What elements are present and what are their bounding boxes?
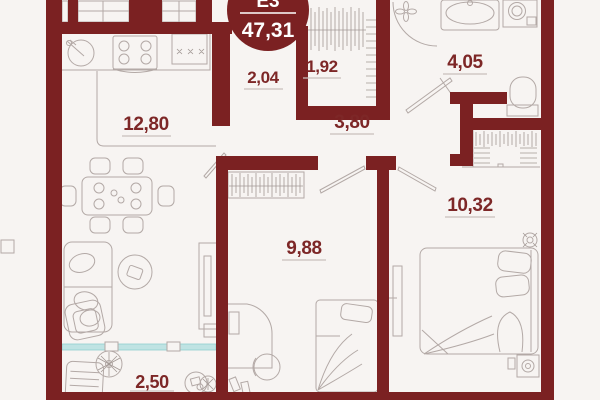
area-bedroom-middle: 9,88 [286, 238, 321, 259]
hall-wardrobe-icon [228, 172, 304, 198]
small-plant-icon [200, 376, 216, 392]
area-bathroom: 4,05 [447, 52, 483, 73]
sofa-icon [64, 242, 112, 332]
toilet-icon [507, 77, 538, 116]
bedroom-right-door-leaf [398, 167, 436, 191]
area-hallway: 3,80 [334, 112, 369, 133]
bed-right-icon [420, 248, 538, 354]
room-area-labels: 12,80 2,04 1,92 3,80 4,05 10,32 9,88 2,5… [122, 52, 495, 392]
area-balcony: 2,50 [135, 372, 169, 392]
kitchen-counter [62, 34, 210, 70]
bathtub-icon [441, 0, 499, 30]
area-kitchen-living: 12,80 [123, 114, 169, 135]
bedroom-wardrobe-icon [462, 130, 540, 167]
plant-icon [96, 351, 122, 377]
coffee-table-icon [118, 255, 152, 289]
ceiling-flower-icon [396, 2, 417, 22]
bathroom-door-leaf [406, 78, 452, 113]
floor-plan-drawing: Е3 47,31 12,80 2,04 1,92 3,80 4,05 10,32… [0, 0, 600, 400]
dining-set-icon [60, 158, 174, 233]
area-corridor: 2,04 [247, 68, 279, 87]
wall-lamp-icon [523, 233, 537, 247]
closet-wardrobe-icon [308, 7, 376, 97]
balcony-table-icon [185, 372, 207, 394]
side-table-icon [204, 324, 217, 337]
tv-stand-icon [199, 243, 218, 329]
balcony-glazing [62, 342, 216, 351]
desk-icon [228, 304, 272, 368]
bed-middle-icon [316, 300, 378, 392]
mirror-icon [393, 266, 402, 336]
apartment-type-label: Е3 [256, 0, 279, 12]
floor-plan: Е3 47,31 12,80 2,04 1,92 3,80 4,05 10,32… [0, 0, 600, 400]
total-area-value: 47,31 [242, 19, 295, 42]
kitchen-sink-icon [67, 40, 95, 66]
desk-chair-icon [253, 354, 280, 380]
exterior-stub [1, 240, 14, 253]
stove-icon [113, 36, 157, 73]
washing-machine-icon [503, 0, 537, 27]
area-closet: 1,92 [306, 57, 338, 76]
bedroom-middle-door-leaf [320, 166, 365, 193]
area-bedroom-right: 10,32 [447, 195, 493, 216]
nightstand-icon [508, 355, 539, 377]
